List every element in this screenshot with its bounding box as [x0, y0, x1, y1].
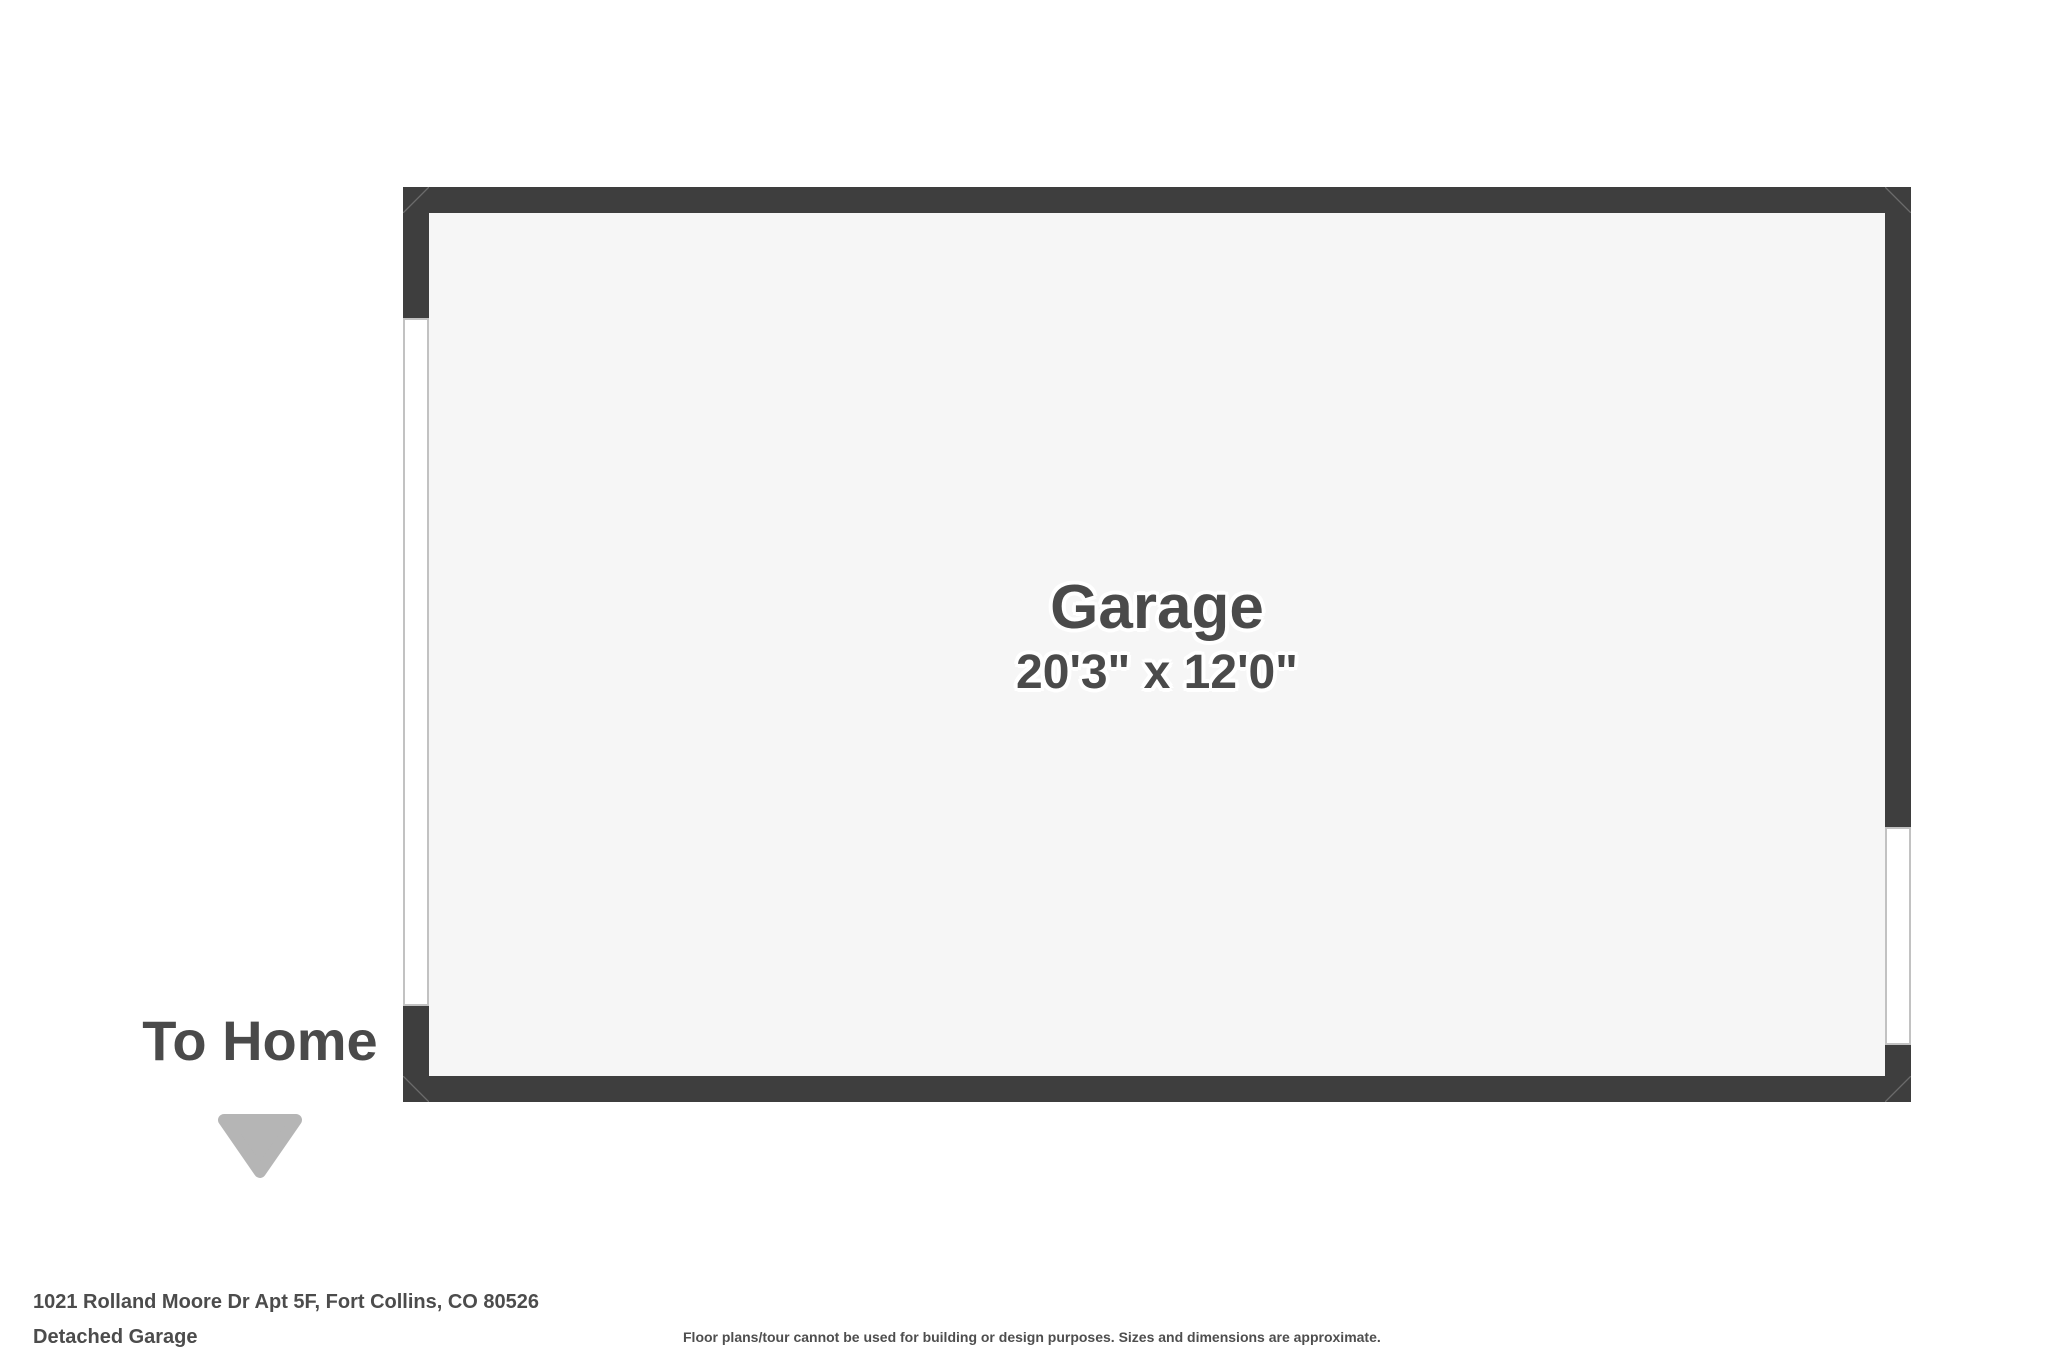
floor-plan: Garage 20'3" x 12'0" [403, 187, 1911, 1102]
wall-corner-seam [403, 1076, 429, 1102]
room-label: Garage 20'3" x 12'0" [403, 577, 1911, 697]
wall-corner-seam [1885, 187, 1911, 213]
footer-address-block: 1021 Rolland Moore Dr Apt 5F, Fort Colli… [33, 1285, 539, 1355]
door-opening-right [1885, 827, 1911, 1045]
wall-bottom [403, 1076, 1911, 1102]
disclaimer-text: Floor plans/tour cannot be used for buil… [683, 1329, 1381, 1345]
room-dimensions: 20'3" x 12'0" [403, 649, 1911, 697]
wall-top [403, 187, 1911, 213]
wall-corner-seam [1885, 1076, 1911, 1102]
wall-corner-seam [403, 187, 429, 213]
floor-plan-page: Garage 20'3" x 12'0" To Home 1021 Rollan… [0, 0, 2048, 1365]
down-arrow-icon [214, 1112, 306, 1182]
room-name: Garage [403, 577, 1911, 639]
to-home-label: To Home [142, 1008, 377, 1073]
plan-type-text: Detached Garage [33, 1320, 539, 1355]
address-text: 1021 Rolland Moore Dr Apt 5F, Fort Colli… [33, 1285, 539, 1320]
